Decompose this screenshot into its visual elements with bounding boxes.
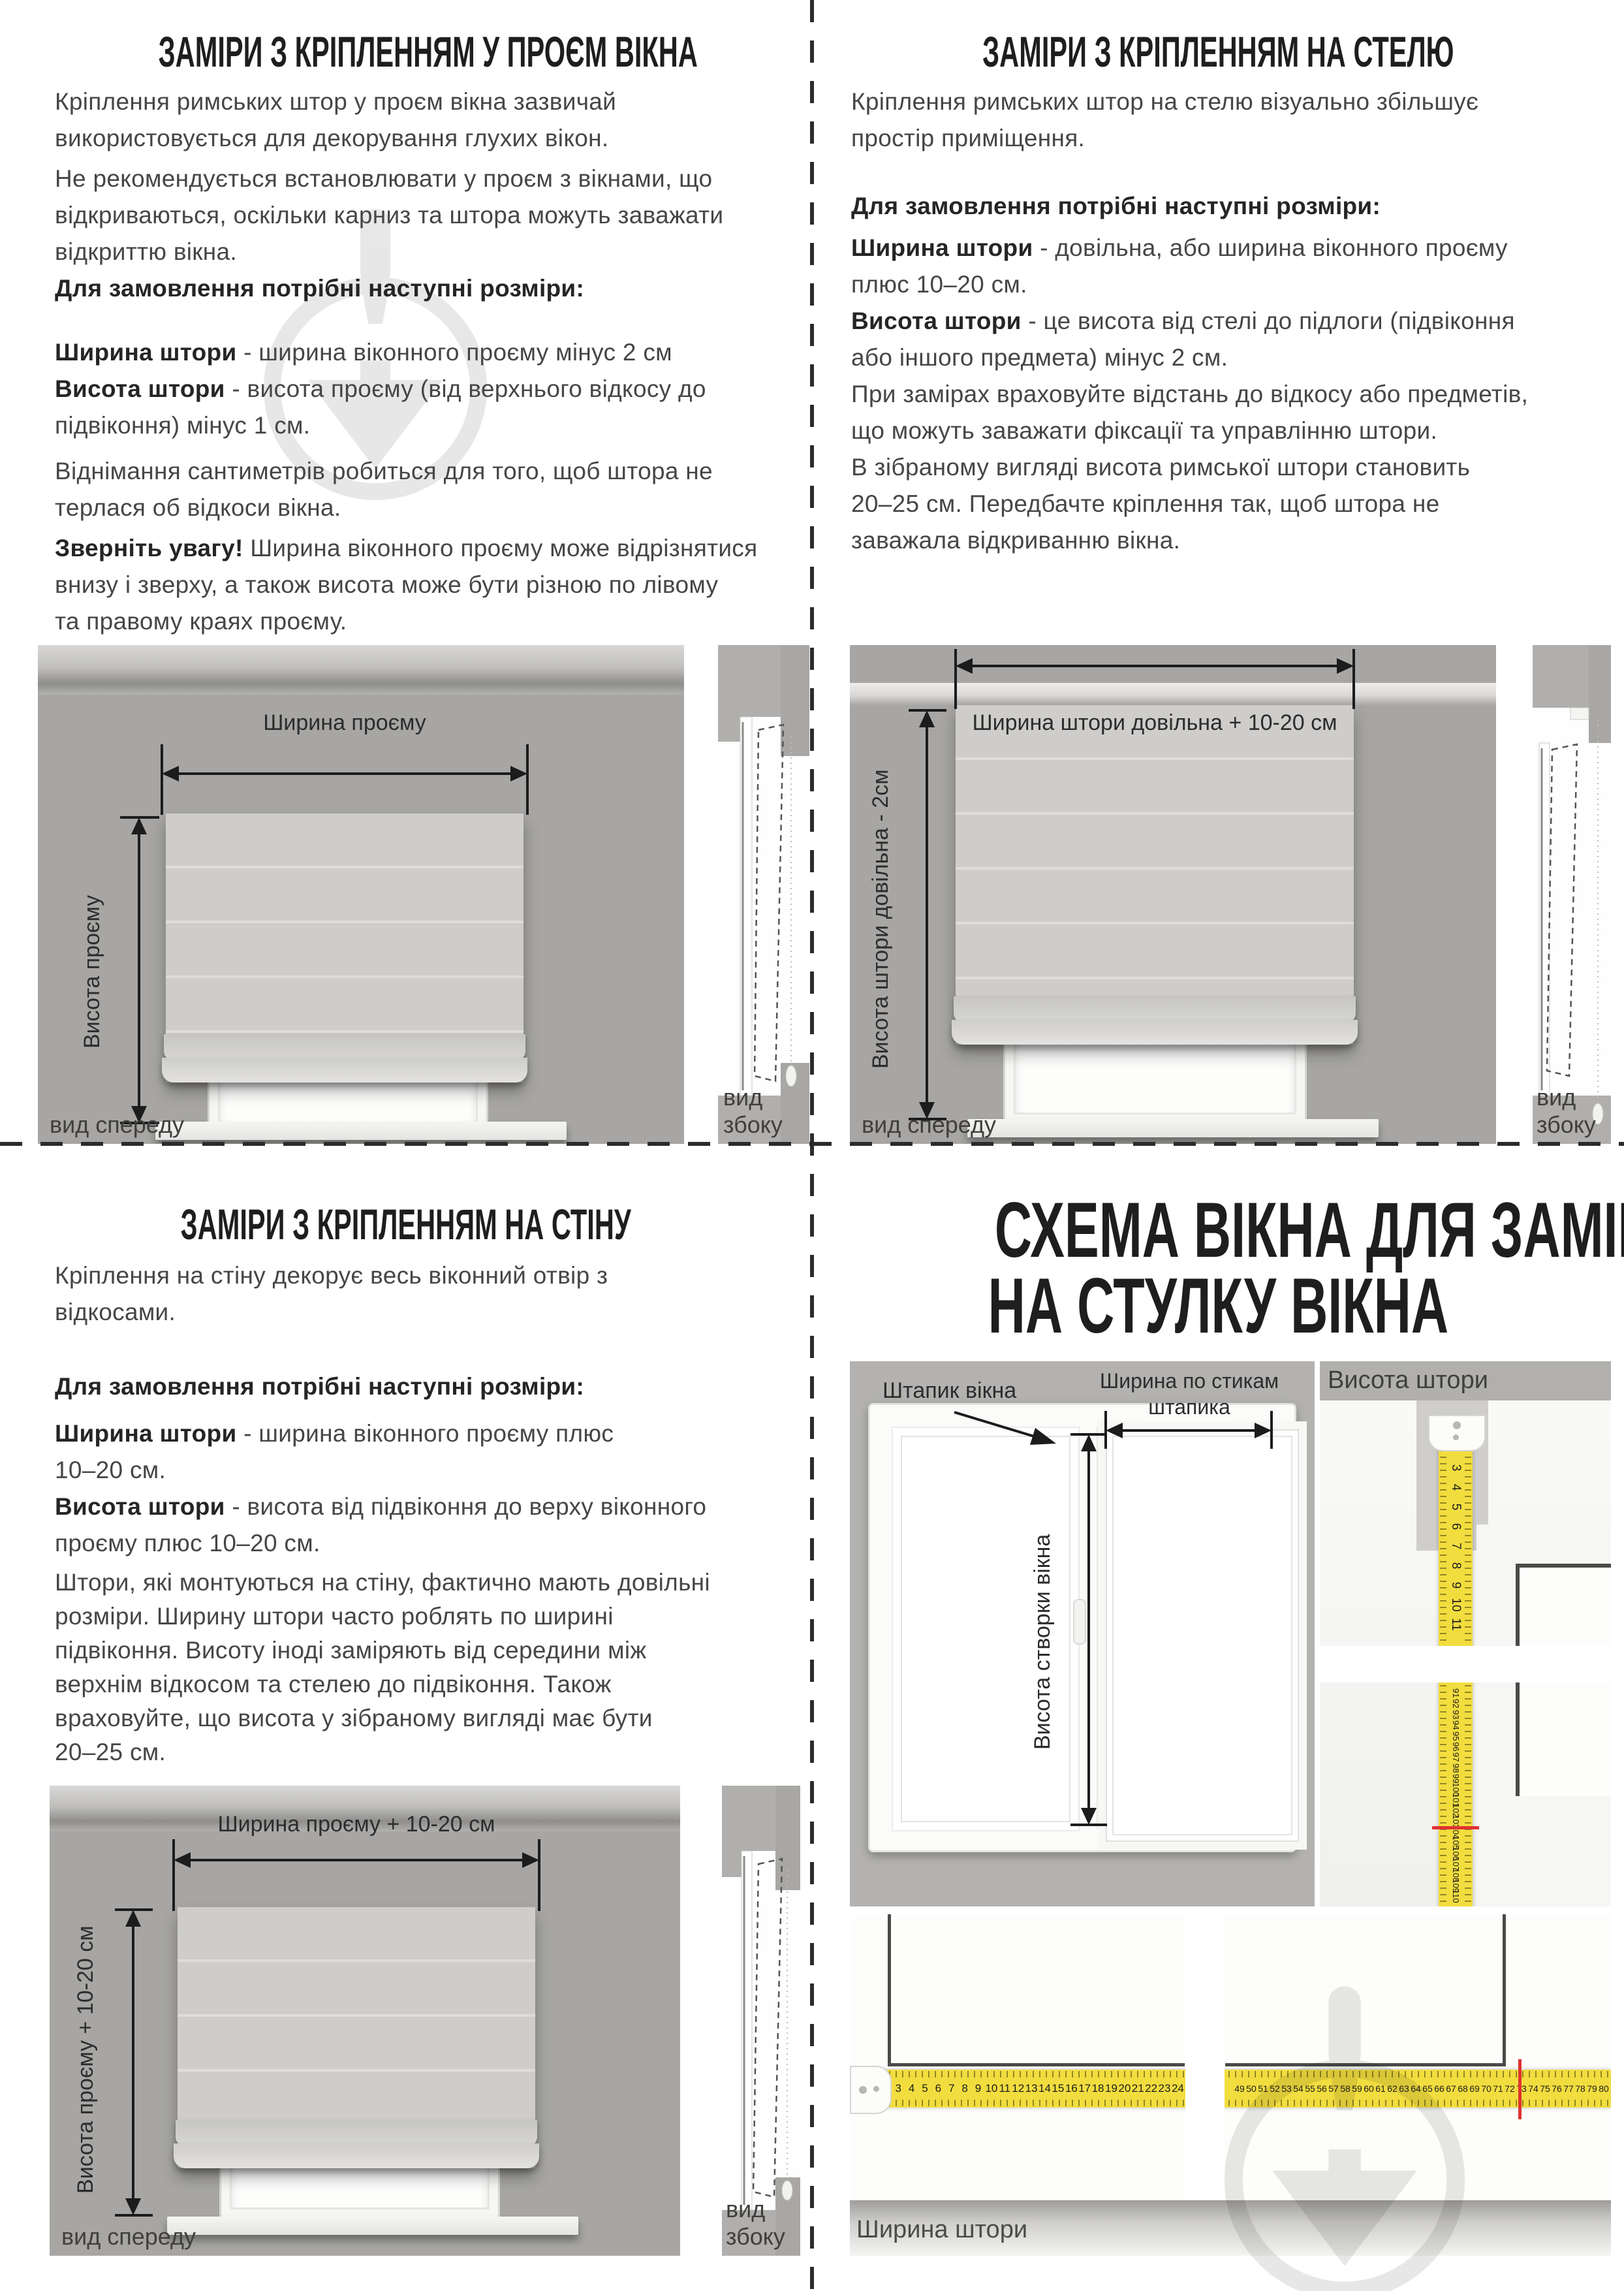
text-line: розміри. Ширину штори часто роблять по ш… xyxy=(55,1600,710,1634)
text-line: терлася об відкоси вікна. xyxy=(55,490,713,526)
sash-frame-line xyxy=(888,1914,891,2066)
tape-bracket xyxy=(1428,1415,1486,1451)
section-title-sash: СХЕМА ВІКНА ДЛЯ ЗАМІРІВ НА СТУЛКУ ВІКНА xyxy=(812,1192,1624,1344)
opening-paragraph-1: Кріплення римських штор у проєм вікна за… xyxy=(55,84,616,157)
front-view-caption: вид спереду xyxy=(61,2223,196,2251)
text-line: Ширина штори - ширина віконного проєму п… xyxy=(55,1415,706,1452)
text-line: Зверніть увагу! Ширина віконного проєму … xyxy=(55,530,757,567)
tape-bracket xyxy=(850,2066,892,2114)
bold-text: Для замовлення потрібні наступні розміри… xyxy=(55,1373,584,1400)
text-line: При замірах враховуйте відстань до відко… xyxy=(851,376,1528,413)
ceiling-paragraph-1: Кріплення римських штор на стелю візуаль… xyxy=(851,84,1478,157)
ceiling-order-heading: Для замовлення потрібні наступні розміри… xyxy=(851,188,1381,225)
sash-window-diagram: Штапик вікна Ширина по стикам штапика Ви… xyxy=(850,1361,1315,1906)
side-view-caption: вид збоку xyxy=(726,2196,800,2251)
front-view-caption: вид спереду xyxy=(50,1111,184,1139)
text-line: або іншого предмета) мінус 2 см. xyxy=(851,340,1515,376)
wall-paragraph-1: Кріплення на стіну декорує весь віконний… xyxy=(55,1257,608,1331)
red-measure-mark xyxy=(1518,2059,1522,2119)
text-line: заважала відкриванню вікна. xyxy=(851,522,1528,559)
opening-front-view-diagram: Ширина проєму Висота проєму вид спереду xyxy=(38,645,684,1144)
text-line: та правому краях проєму. xyxy=(55,603,757,640)
side-view-caption: вид збоку xyxy=(723,1084,809,1139)
text-line: Висота штори - висота проєму (від верхнь… xyxy=(55,371,706,407)
text-line: враховуйте, що висота у зібраному вигляд… xyxy=(55,1701,710,1735)
sash-height-label: Висота створки вікна xyxy=(1030,1472,1055,1812)
text-line: Кріплення римських штор у проєм вікна за… xyxy=(55,84,616,120)
text-line: відкриваються, оскільки карниз та штора … xyxy=(55,197,723,234)
text-line: 20–25 см. xyxy=(55,1735,710,1769)
dimension-arrows xyxy=(50,1786,680,2256)
height-arrow-label: Висота проєму + 10-20 см xyxy=(73,1916,99,2204)
text-line: плюс 10–20 см. xyxy=(851,266,1515,303)
text-line: 20–25 см. Передбачте кріплення так, щоб … xyxy=(851,486,1528,522)
opening-sizes: Ширина штори - ширина віконного проєму м… xyxy=(55,334,706,444)
bold-text: Для замовлення потрібні наступні розміри… xyxy=(851,193,1381,219)
text-line: внизу і зверху, а також висота може бути… xyxy=(55,567,757,603)
text-line: проєму плюс 10–20 см. xyxy=(55,1525,706,1562)
ceiling-paragraph-2: При замірах враховуйте відстань до відко… xyxy=(851,376,1528,559)
curtain-height-diagram: 34567891011 9192939495969798991001011021… xyxy=(1320,1361,1611,1906)
opening-side-view-diagram: вид збоку xyxy=(718,645,809,1144)
text-line: використовується для декорування глухих … xyxy=(55,120,616,157)
brand-watermark-icon xyxy=(1208,1985,1482,2291)
height-arrow-label: Висота проєму xyxy=(80,828,105,1115)
sash-frame-line xyxy=(1503,1914,1506,2066)
photo-split-gap xyxy=(1320,1646,1611,1683)
text-line: 10–20 см. xyxy=(55,1452,706,1489)
text-line: Кріплення на стіну декорує весь віконний… xyxy=(55,1257,608,1294)
opening-note: Зверніть увагу! Ширина віконного проєму … xyxy=(55,530,757,640)
red-measure-mark xyxy=(1432,1826,1479,1829)
opening-order-heading: Для замовлення потрібні наступні розміри… xyxy=(55,270,584,307)
sash-frame-line xyxy=(888,2063,1185,2066)
curtain-height-label: Висота штори xyxy=(1328,1367,1488,1395)
text-line: Висота штори - це висота від стелі до пі… xyxy=(851,303,1515,340)
text-line: простір приміщення. xyxy=(851,120,1478,157)
section-title-opening: ЗАМІРИ З КРІПЛЕННЯМ У ПРОЄМ ВІКНА xyxy=(0,29,812,74)
text-line: Віднімання сантиметрів робиться для того… xyxy=(55,453,713,490)
text-line: верхнім відкосом та стелею до підвіконня… xyxy=(55,1667,710,1701)
ceiling-sizes: Ширина штори - довільна, або ширина віко… xyxy=(851,230,1515,376)
ceiling-front-view-diagram: Ширина штори довільна + 10-20 см Висота … xyxy=(850,645,1496,1144)
section-title-wall: ЗАМІРИ З КРІПЛЕННЯМ НА СТІНУ xyxy=(0,1201,812,1247)
text-line: відкриттю вікна. xyxy=(55,234,723,270)
text-line: В зібраному вигляді висота римської штор… xyxy=(851,449,1528,486)
text-line: відкосами. xyxy=(55,1294,608,1331)
curtain-width-label: Ширина штори xyxy=(856,2216,1027,2244)
wall-side-view-diagram: вид збоку xyxy=(722,1786,800,2256)
tape-numbers: 34567891011 xyxy=(1439,1458,1473,1634)
text-line: Штори, які монтуються на стіну, фактично… xyxy=(55,1566,710,1600)
tape-numbers: 3456789101112131415161718192021222324 xyxy=(892,2074,1185,2103)
opening-paragraph-2: Не рекомендується встановлювати у проєм … xyxy=(55,161,723,270)
dimension-arrows xyxy=(850,1361,1315,1906)
wall-paragraph-2: Штори, які монтуються на стіну, фактично… xyxy=(55,1566,710,1769)
text-line: підвіконня) мінус 1 см. xyxy=(55,407,706,444)
bold-text: Для замовлення потрібні наступні розміри… xyxy=(55,275,584,302)
text-line: Кріплення римських штор на стелю візуаль… xyxy=(851,84,1478,120)
wall-front-view-diagram: Ширина проєму + 10-20 см Висота проєму +… xyxy=(50,1786,680,2256)
text-line: що можуть заважати фіксації та управлінн… xyxy=(851,413,1528,449)
height-arrow-label: Висота штори довільна - 2см xyxy=(868,730,894,1109)
wall-order-heading: Для замовлення потрібні наступні розміри… xyxy=(55,1368,584,1405)
instruction-sheet: ЗАМІРИ З КРІПЛЕННЯМ У ПРОЄМ ВІКНА Кріпле… xyxy=(0,0,1624,2291)
opening-paragraph-3: Віднімання сантиметрів робиться для того… xyxy=(55,453,713,526)
width-arrow-label: Ширина проєму + 10-20 см xyxy=(154,1812,559,1837)
front-view-caption: вид спереду xyxy=(862,1111,996,1139)
bead-width-label: Ширина по стикам штапика xyxy=(1085,1368,1294,1420)
width-arrow-label: Ширина проєму xyxy=(129,710,560,736)
side-view-drawing xyxy=(718,645,809,1144)
section-title-ceiling: ЗАМІРИ З КРІПЛЕННЯМ НА СТЕЛЮ xyxy=(812,29,1624,74)
text-line: Висота штори - висота від підвіконня до … xyxy=(55,1489,706,1525)
tape-numbers: 9192939495969798991001011021031041051061… xyxy=(1439,1688,1473,1902)
ceiling-side-view-diagram: вид збоку xyxy=(1533,645,1611,1144)
side-view-drawing xyxy=(722,1786,800,2256)
side-view-drawing xyxy=(1533,645,1611,1144)
side-view-caption: вид збоку xyxy=(1537,1084,1611,1139)
text-line: підвіконня. Висоту іноді заміряють від с… xyxy=(55,1634,710,1667)
horizontal-dashed-divider xyxy=(0,1142,1624,1146)
text-line: Ширина штори - ширина віконного проєму м… xyxy=(55,334,706,371)
text-line: Не рекомендується встановлювати у проєм … xyxy=(55,161,723,197)
text-line: Ширина штори - довільна, або ширина віко… xyxy=(851,230,1515,266)
bead-label: Штапик вікна xyxy=(882,1378,1016,1404)
width-arrow-label: Ширина штори довільна + 10-20 см xyxy=(956,710,1354,736)
wall-sizes: Ширина штори - ширина віконного проєму п… xyxy=(55,1415,706,1562)
